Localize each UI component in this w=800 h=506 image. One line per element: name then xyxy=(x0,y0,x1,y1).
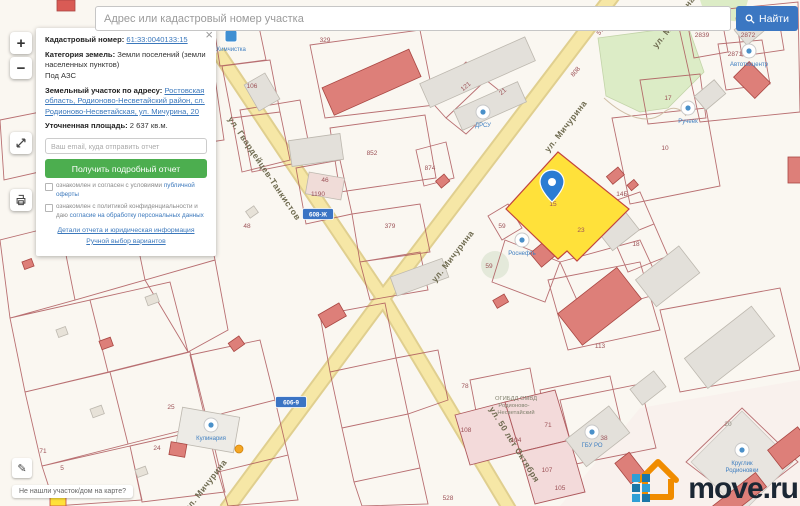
panel-links: Детали отчета и юридическая информация Р… xyxy=(45,226,207,248)
parcel-label: 14Б xyxy=(616,191,628,198)
poi-label: ГБУ РО xyxy=(581,443,602,449)
search-button-label: Найти xyxy=(759,13,789,25)
parcel-label: 15 xyxy=(549,201,557,208)
poi-label: Ручеек xyxy=(678,119,698,125)
parcel-label: 38 xyxy=(600,435,608,442)
cadastral-number-label: Кадастровый номер: xyxy=(45,35,124,44)
report-details-link[interactable]: Детали отчета и юридическая информация xyxy=(45,226,207,237)
parcel-label: 2839 xyxy=(695,32,710,39)
parcel-label: 528 xyxy=(443,495,454,502)
land-category-label: Категория земель: xyxy=(45,50,115,59)
parcel-label: 2872 xyxy=(741,32,756,39)
parcel-label: 5 xyxy=(60,465,64,472)
parcel-label: 24 xyxy=(153,445,161,452)
poi-label: Химчистка xyxy=(216,47,246,53)
poi-dot xyxy=(685,105,690,110)
logo-text: move.ru xyxy=(688,476,798,502)
parcel-label: 23 xyxy=(577,227,585,234)
area-value: 2 637 кв.м. xyxy=(130,121,168,130)
parcel-label: Родионово- xyxy=(498,403,529,409)
email-input[interactable] xyxy=(45,138,207,154)
parcel-label: 113 xyxy=(595,343,606,350)
offer-checkbox-row: ознакомлен и согласен с условиями публич… xyxy=(45,182,207,199)
parcel-label: 1190 xyxy=(311,191,325,198)
not-found-hint[interactable]: Не нашли участок/дом на карте? xyxy=(12,485,133,498)
poi-square-icon xyxy=(225,30,237,42)
parcel-label: 2871 xyxy=(728,51,743,58)
parcel-label: 18 xyxy=(632,241,640,248)
address-row: Земельный участок по адресу: Ростовская … xyxy=(45,86,207,118)
parcel-label: 874 xyxy=(425,165,436,172)
print-button[interactable] xyxy=(10,189,32,211)
search-input[interactable] xyxy=(95,6,731,31)
cadastral-map-page: ул. Мичуринаул. Мичуринаул. Мичуринаул. … xyxy=(0,0,800,506)
parcel-label: 78 xyxy=(461,383,469,390)
privacy-checkbox[interactable] xyxy=(45,204,53,212)
zoom-out-button[interactable]: − xyxy=(10,57,32,79)
parcel-label: 379 xyxy=(385,223,396,230)
parcel-label: 107 xyxy=(542,467,553,474)
parcel-label: 329 xyxy=(320,37,331,44)
move-ru-logo: move.ru xyxy=(630,452,798,502)
poi-dot xyxy=(519,237,524,242)
search-bar: Найти xyxy=(95,6,798,31)
zoom-in-button[interactable]: + xyxy=(10,32,32,54)
poi-label: ДРСУ xyxy=(475,123,491,129)
parcel-label: 59 xyxy=(485,263,493,270)
parcel-label: 71 xyxy=(39,448,47,455)
parcel-label: 71 xyxy=(544,422,552,429)
parcel-label: 852 xyxy=(367,150,378,157)
poi-dot xyxy=(480,109,485,114)
measure-button[interactable] xyxy=(10,132,32,154)
parcel-label: 105 xyxy=(555,485,566,492)
area-label: Уточненная площадь: xyxy=(45,121,128,130)
draw-button[interactable]: ✎ xyxy=(12,458,32,478)
parcel-info-panel: × Кадастровый номер: 61:33:0040133:15 Ка… xyxy=(36,28,216,256)
parcel-label: 59 xyxy=(498,223,506,230)
diagonal-arrows-icon xyxy=(14,136,28,150)
parcel-label: 17 xyxy=(664,95,672,102)
parcel-label: 106 xyxy=(247,83,258,90)
privacy-checkbox-row: ознакомлен с политикой конфиденциальност… xyxy=(45,203,207,220)
parcel-label: 108 xyxy=(461,427,472,434)
manual-select-link[interactable]: Ручной выбор вариантов xyxy=(45,237,207,248)
pencil-icon: ✎ xyxy=(17,462,26,475)
parcel-label: 10 xyxy=(661,145,669,152)
poi-dot xyxy=(589,429,594,434)
cadastral-number-link[interactable]: 61:33:0040133:15 xyxy=(126,35,187,44)
get-report-button[interactable]: Получить подробный отчет xyxy=(45,159,207,178)
parcel-label: 46 xyxy=(321,177,329,184)
parcel-label: Несветайский xyxy=(497,409,534,416)
poi-label: Автотехцентр xyxy=(730,62,769,68)
road-badge-text: 608-Ж xyxy=(309,212,327,219)
printer-icon xyxy=(14,193,28,207)
poi-dot xyxy=(746,48,751,53)
personal-data-link[interactable]: согласие на обработку персональных данны… xyxy=(70,212,204,219)
poi-label: Кулинария xyxy=(196,436,226,442)
privacy-checkbox-text: ознакомлен с политикой конфиденциальност… xyxy=(56,203,207,220)
cadastral-number-row: Кадастровый номер: 61:33:0040133:15 xyxy=(45,35,207,46)
address-label: Земельный участок по адресу: xyxy=(45,86,162,95)
offer-checkbox[interactable] xyxy=(45,183,53,191)
parcel-label: ОГИБДД ОМВД xyxy=(495,396,537,402)
road-badge-text: 606-9 xyxy=(283,400,299,407)
land-category-extra: Под АЗС xyxy=(45,71,76,80)
parcel-label: 104 xyxy=(511,437,522,444)
land-category-row: Категория земель: Земли поселений (земли… xyxy=(45,50,207,82)
poi-dot xyxy=(208,422,213,427)
offer-checkbox-text: ознакомлен и согласен с условиями публич… xyxy=(56,182,207,199)
parcel-label: 20 xyxy=(724,421,732,428)
search-button[interactable]: Найти xyxy=(736,6,798,31)
search-icon xyxy=(745,14,755,24)
area-row: Уточненная площадь: 2 637 кв.м. xyxy=(45,121,207,132)
house-icon xyxy=(630,452,688,502)
parcel-label: 25 xyxy=(167,404,175,411)
parcel-label: 48 xyxy=(243,223,251,230)
poi-label: Роснефть xyxy=(508,251,535,257)
